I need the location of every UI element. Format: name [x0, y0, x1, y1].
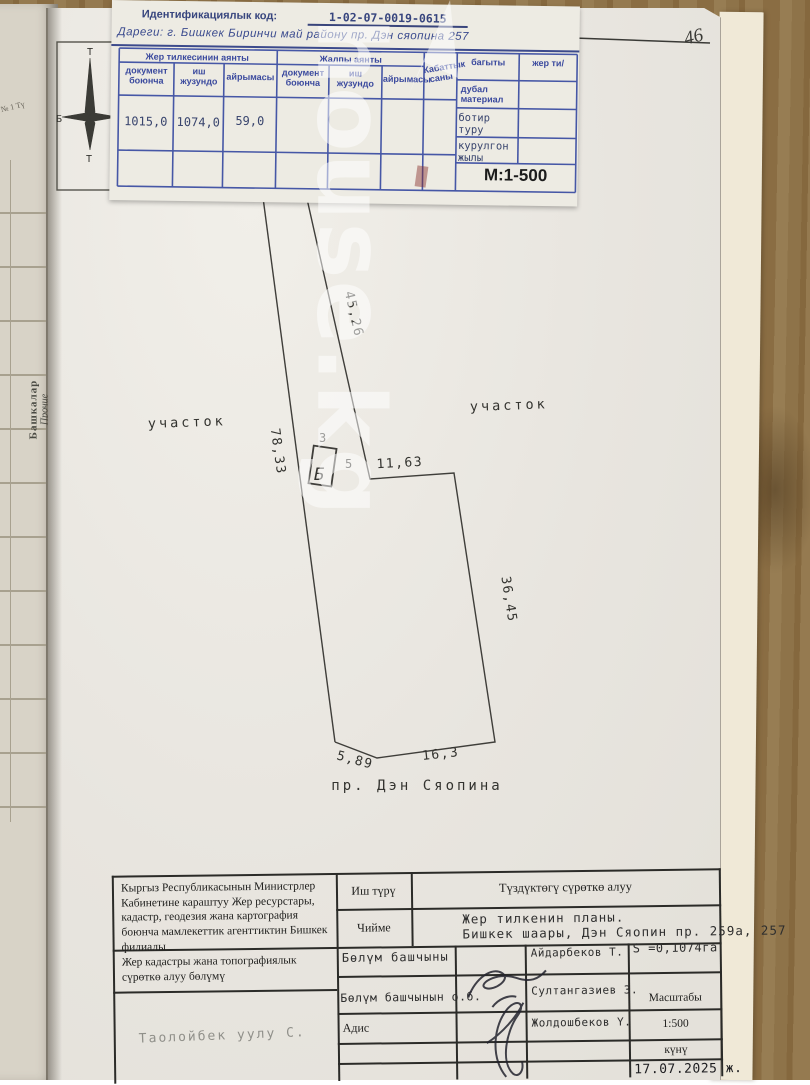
- scale-label: Масштабы: [630, 990, 720, 1006]
- specialist-signature: [486, 996, 524, 1077]
- scale-value: 1:500: [631, 1016, 721, 1032]
- drawing-label: Чийме: [336, 920, 411, 936]
- ft-border: [337, 1008, 722, 1014]
- head-label: Бөлүм башчыны: [342, 950, 449, 965]
- date-value: 17.07.2025 ж.: [634, 1061, 742, 1077]
- ft-border: [113, 989, 337, 993]
- ft-border: [112, 868, 721, 877]
- specialist-label: Адис: [343, 1021, 370, 1037]
- agency-name: Кыргыз Республикасынын Министрлер Кабине…: [121, 879, 330, 955]
- acting-head-label: Бөлүм башчынын о.б.: [340, 989, 481, 1005]
- area-value: S =0,1074га: [633, 940, 718, 955]
- acting-head-name: Султангазиев З.: [531, 983, 638, 997]
- head-name: Айдарбеков Т.: [531, 945, 624, 959]
- department-name: Жер кадастры жана топографиялык сүрөткө …: [122, 953, 332, 985]
- ft-border: [337, 971, 722, 977]
- drawing-value-line2: Бишкек шаары, Дэн Сяопин пр. 259а, 257: [462, 922, 786, 941]
- work-type-label: Иш түрү: [336, 883, 411, 899]
- specialist-name: Жолдошбеков Ү.: [532, 1015, 632, 1029]
- ft-border: [112, 876, 116, 1084]
- handwritten-name: Таолойбек уулу С.: [139, 1025, 307, 1046]
- footer-title-block: Кыргыз Республикасынын Министрлер Кабине…: [0, 0, 810, 1085]
- date-label: күнү: [631, 1042, 721, 1058]
- work-type-value: Түздүктөгү сүрөткө алуу: [412, 877, 719, 897]
